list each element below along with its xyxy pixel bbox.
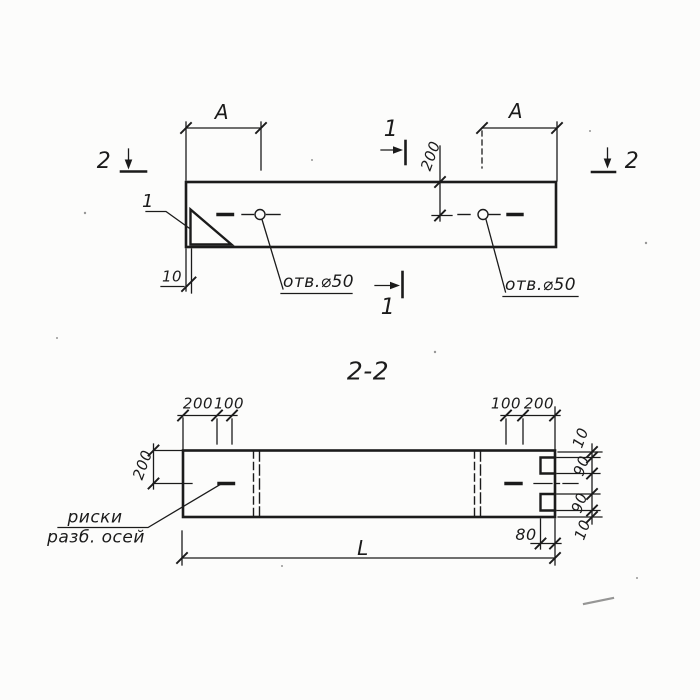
hole-label-right: отв.⌀50 — [505, 277, 576, 294]
top-view — [121, 122, 615, 297]
section-marker-2-left — [121, 149, 146, 172]
hole-right — [458, 210, 522, 220]
section-title: 2-2 — [347, 359, 389, 384]
section-1-bottom-label: 1 — [381, 297, 396, 319]
slot-lower — [541, 494, 556, 511]
slot-upper — [541, 458, 556, 474]
dim-a-left-label: A — [215, 102, 229, 122]
leader-text-line2: разб. осей — [47, 530, 145, 547]
section-marker-1-bottom — [375, 272, 403, 297]
dim-80-label: 80 — [515, 527, 536, 543]
dim-a-right-label: A — [509, 101, 523, 121]
section-marker-2-right — [592, 148, 615, 172]
dim-chain-top-left — [178, 411, 237, 450]
dim-100-br-label: 100 — [491, 397, 521, 412]
section-1-top-label: 1 — [384, 119, 399, 141]
dim-100-bl-label: 100 — [214, 397, 244, 412]
hole-left — [218, 210, 280, 220]
section-2-right-label: 2 — [625, 151, 640, 173]
hidden-edges — [254, 451, 481, 516]
dim-a-right — [477, 122, 562, 181]
drawing-sheet: A A 1 1 2 2 200 1 10 отв.⌀50 отв.⌀50 2-2… — [0, 0, 700, 700]
hole-label-left: отв.⌀50 — [283, 274, 354, 291]
callout-1-label: 1 — [142, 193, 154, 211]
callout-leader — [146, 212, 189, 229]
dim-10-label: 10 — [162, 270, 182, 285]
dim-length-label: L — [357, 538, 369, 558]
section-2-left-label: 2 — [97, 151, 112, 173]
leader-text-line1: риски — [67, 510, 122, 527]
section-beam-outline — [183, 451, 555, 518]
dim-200-br-label: 200 — [524, 397, 554, 412]
drawing-linework — [0, 0, 700, 700]
dim-200-bl-label: 200 — [183, 397, 213, 412]
dim-a-left — [181, 122, 266, 180]
section-marker-1-top — [381, 141, 406, 164]
dim-chain-top-right — [501, 407, 560, 449]
